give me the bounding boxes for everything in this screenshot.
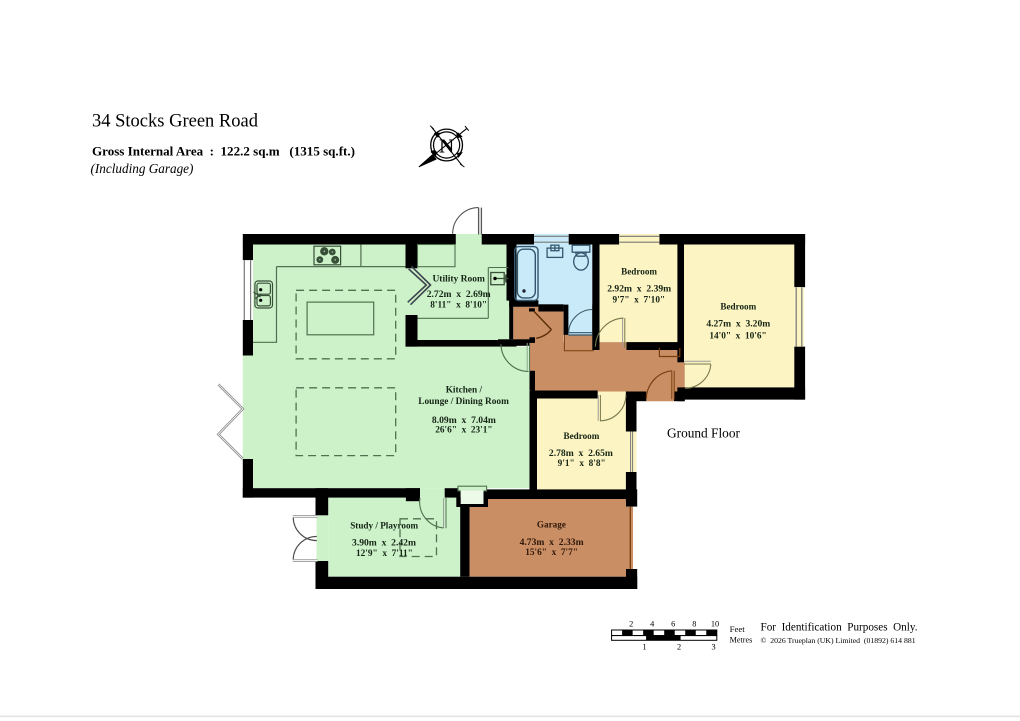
- svg-text:14'0" x 10'6": 14'0" x 10'6": [709, 331, 766, 341]
- svg-text:(Including Garage): (Including Garage): [91, 161, 194, 176]
- svg-text:Ground Floor: Ground Floor: [667, 425, 740, 440]
- svg-text:Metres: Metres: [730, 635, 753, 644]
- svg-text:For Identification Purposes: For Identification Purposes Only.: [761, 622, 918, 634]
- svg-text:9'1" x 8'8": 9'1" x 8'8": [558, 459, 606, 469]
- svg-text:Study / Playroom: Study / Playroom: [350, 520, 418, 530]
- svg-text:2: 2: [677, 643, 681, 652]
- svg-text:8: 8: [692, 619, 696, 628]
- svg-text:15'6" x 7'7": 15'6" x 7'7": [525, 548, 578, 558]
- svg-text:4.73m x 2.33m: 4.73m x 2.33m: [520, 537, 584, 548]
- svg-text:Bedroom: Bedroom: [720, 302, 756, 312]
- svg-text:2.92m x 2.39m: 2.92m x 2.39m: [607, 284, 671, 295]
- svg-text:9'7" x 7'10": 9'7" x 7'10": [612, 295, 665, 305]
- svg-text:3: 3: [712, 643, 716, 652]
- svg-text:Garage: Garage: [537, 519, 566, 529]
- svg-text:2.78m x 2.65m: 2.78m x 2.65m: [549, 448, 613, 459]
- svg-text:8.09m x 7.04m: 8.09m x 7.04m: [432, 415, 496, 426]
- svg-text:26'6" x 23'1": 26'6" x 23'1": [435, 426, 492, 436]
- svg-text:Kitchen /: Kitchen /: [446, 385, 483, 395]
- svg-text:2: 2: [629, 619, 633, 628]
- svg-text:© 2026 Trueplan (UK) Limited: © 2026 Trueplan (UK) Limited (01892) 614…: [761, 636, 916, 645]
- svg-text:N: N: [439, 135, 454, 157]
- svg-text:Gross Internal Area : 122.2: Gross Internal Area : 122.2 sq.m (1315 s…: [92, 144, 355, 159]
- svg-text:Utility Room: Utility Room: [432, 275, 485, 285]
- svg-text:4.27m x 3.20m: 4.27m x 3.20m: [706, 318, 770, 329]
- svg-text:Bedroom: Bedroom: [563, 431, 599, 441]
- svg-text:34 Stocks Green Road: 34 Stocks Green Road: [92, 112, 259, 132]
- svg-text:8'11" x 8'10": 8'11" x 8'10": [430, 301, 487, 311]
- svg-text:2.72m x 2.69m: 2.72m x 2.69m: [427, 289, 491, 300]
- svg-text:12'9" x 7'11": 12'9" x 7'11": [356, 549, 413, 559]
- svg-text:1: 1: [643, 643, 647, 652]
- svg-text:6: 6: [671, 619, 675, 628]
- svg-text:10: 10: [711, 619, 719, 628]
- svg-text:3.90m x 2.42m: 3.90m x 2.42m: [352, 537, 416, 548]
- svg-text:Bedroom: Bedroom: [621, 267, 657, 277]
- svg-text:Lounge / Dining Room: Lounge / Dining Room: [418, 397, 509, 407]
- svg-text:Feet: Feet: [730, 624, 746, 634]
